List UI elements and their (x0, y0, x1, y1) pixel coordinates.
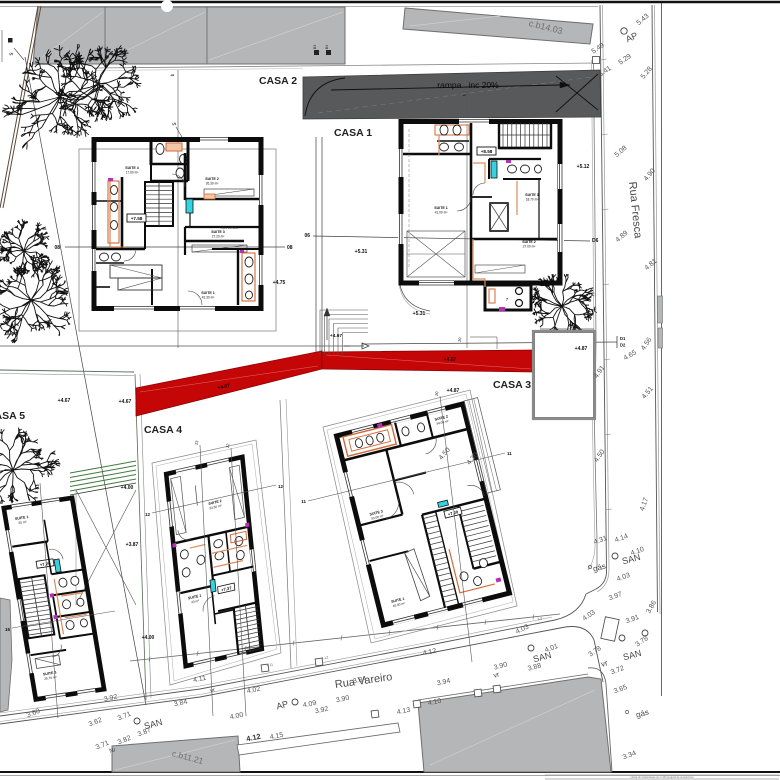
svg-text:dpós cobradas: dpós cobradas (221, 226, 239, 230)
svg-text:11: 11 (507, 451, 512, 456)
svg-text:SUITE 1: SUITE 1 (201, 291, 215, 295)
svg-text:s: s (172, 123, 178, 126)
svg-text:+5.31: +5.31 (413, 311, 426, 317)
svg-text:+4.00: +4.00 (142, 635, 155, 641)
svg-text:B3: B3 (313, 45, 317, 49)
svg-text:+4.67: +4.67 (119, 399, 132, 405)
svg-text:27.20 m²: 27.20 m² (212, 235, 225, 239)
svg-text:CASA 2: CASA 2 (259, 75, 297, 87)
svg-text:rampa inc 20%: rampa inc 20% (437, 80, 499, 90)
svg-text:CASA 1: CASA 1 (334, 127, 372, 139)
svg-text:planta de implantacao esc 1:2: planta de implantacao esc 1:200 projecto… (631, 776, 695, 779)
svg-text:+4.75: +4.75 (273, 280, 286, 286)
svg-text:15: 15 (5, 627, 11, 632)
svg-text:+5.31: +5.31 (355, 249, 368, 255)
svg-text:11: 11 (301, 499, 306, 504)
svg-text:42.30 m²: 42.30 m² (202, 296, 215, 300)
svg-text:CASA 4: CASA 4 (144, 424, 182, 436)
svg-text:CASA 5: CASA 5 (0, 410, 25, 422)
svg-text:+4.67: +4.67 (58, 398, 71, 404)
svg-text:SUITE 1: SUITE 1 (434, 206, 448, 210)
svg-text:D1: D1 (620, 336, 626, 341)
svg-text:SUITE 3: SUITE 3 (211, 230, 225, 234)
svg-text:+8.58: +8.58 (481, 149, 493, 154)
svg-text:D6: D6 (592, 238, 599, 244)
svg-text:+4.67: +4.67 (444, 357, 457, 363)
svg-text:08: 08 (54, 245, 60, 251)
svg-text:+5.12: +5.12 (577, 164, 590, 170)
svg-text:12: 12 (145, 512, 151, 517)
svg-text:+4.67: +4.67 (330, 333, 342, 339)
svg-text:+4.00: +4.00 (121, 485, 134, 491)
svg-text:+7.58: +7.58 (131, 216, 143, 221)
svg-text:SUITE 4: SUITE 4 (125, 166, 139, 170)
svg-text:CASA 3: CASA 3 (493, 379, 531, 391)
svg-text:SUITE 2: SUITE 2 (522, 240, 536, 244)
svg-text:+4.87: +4.87 (447, 388, 460, 394)
svg-text:+4.87: +4.87 (575, 346, 588, 352)
svg-text:12: 12 (278, 484, 284, 489)
svg-text:27.00 m²: 27.00 m² (523, 245, 536, 249)
svg-text:06: 06 (304, 233, 310, 239)
svg-text:41.00 m²: 41.00 m² (435, 211, 448, 215)
svg-text:17.60 m²: 17.60 m² (126, 171, 139, 175)
svg-text:08: 08 (287, 245, 293, 251)
svg-text:3.9: 3.9 (537, 617, 542, 622)
svg-text:+3.87: +3.87 (126, 542, 139, 548)
svg-text:s: s (9, 53, 15, 56)
svg-text:D2: D2 (620, 343, 626, 348)
svg-text:B4: B4 (325, 45, 329, 49)
svg-text:26.30 m²: 26.30 m² (206, 182, 219, 186)
svg-text:18.70 m²: 18.70 m² (526, 198, 539, 202)
svg-text:SUITE 3: SUITE 3 (525, 193, 539, 197)
svg-text:SUITE 2: SUITE 2 (205, 177, 219, 181)
